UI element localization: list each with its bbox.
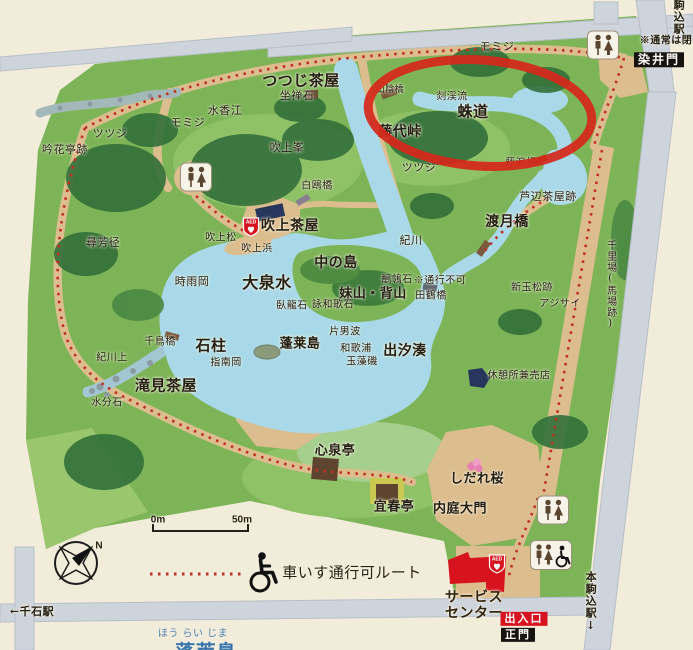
wheelchair-icon-legend (244, 550, 284, 594)
toilet-icon-west (180, 163, 212, 192)
aed-icon-service-center: AED (488, 554, 506, 575)
toilet-icon-north (587, 31, 619, 60)
svg-text:AED: AED (492, 557, 503, 563)
svg-text:AED: AED (246, 220, 257, 226)
park-map: ※通常は閉駒込駅染井門モミジつつじ茶屋坐禅石山陰橋剡渓流蛛道藤代峠モミジ水香江ツ… (0, 0, 693, 650)
aed-icon-fukiage: AED (242, 217, 260, 238)
icon-layer: AEDAED (0, 0, 693, 650)
toilet-icon-south (537, 496, 569, 525)
accessible-toilet-icon (530, 540, 572, 570)
blossom-icon (467, 459, 484, 474)
